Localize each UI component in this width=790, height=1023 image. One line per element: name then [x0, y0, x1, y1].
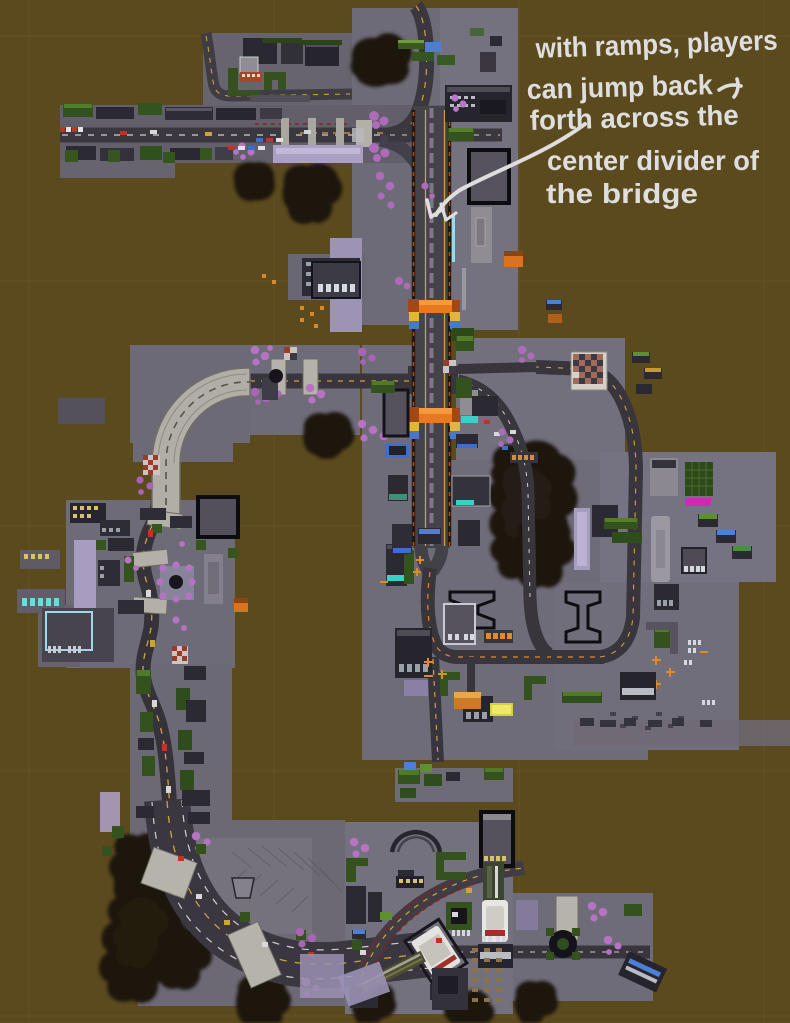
svg-text:center divider of: center divider of: [547, 145, 760, 176]
svg-text:the bridge: the bridge: [546, 178, 698, 209]
svg-text:forth across the: forth across the: [529, 100, 739, 136]
svg-text:can jump back: can jump back: [526, 69, 713, 105]
